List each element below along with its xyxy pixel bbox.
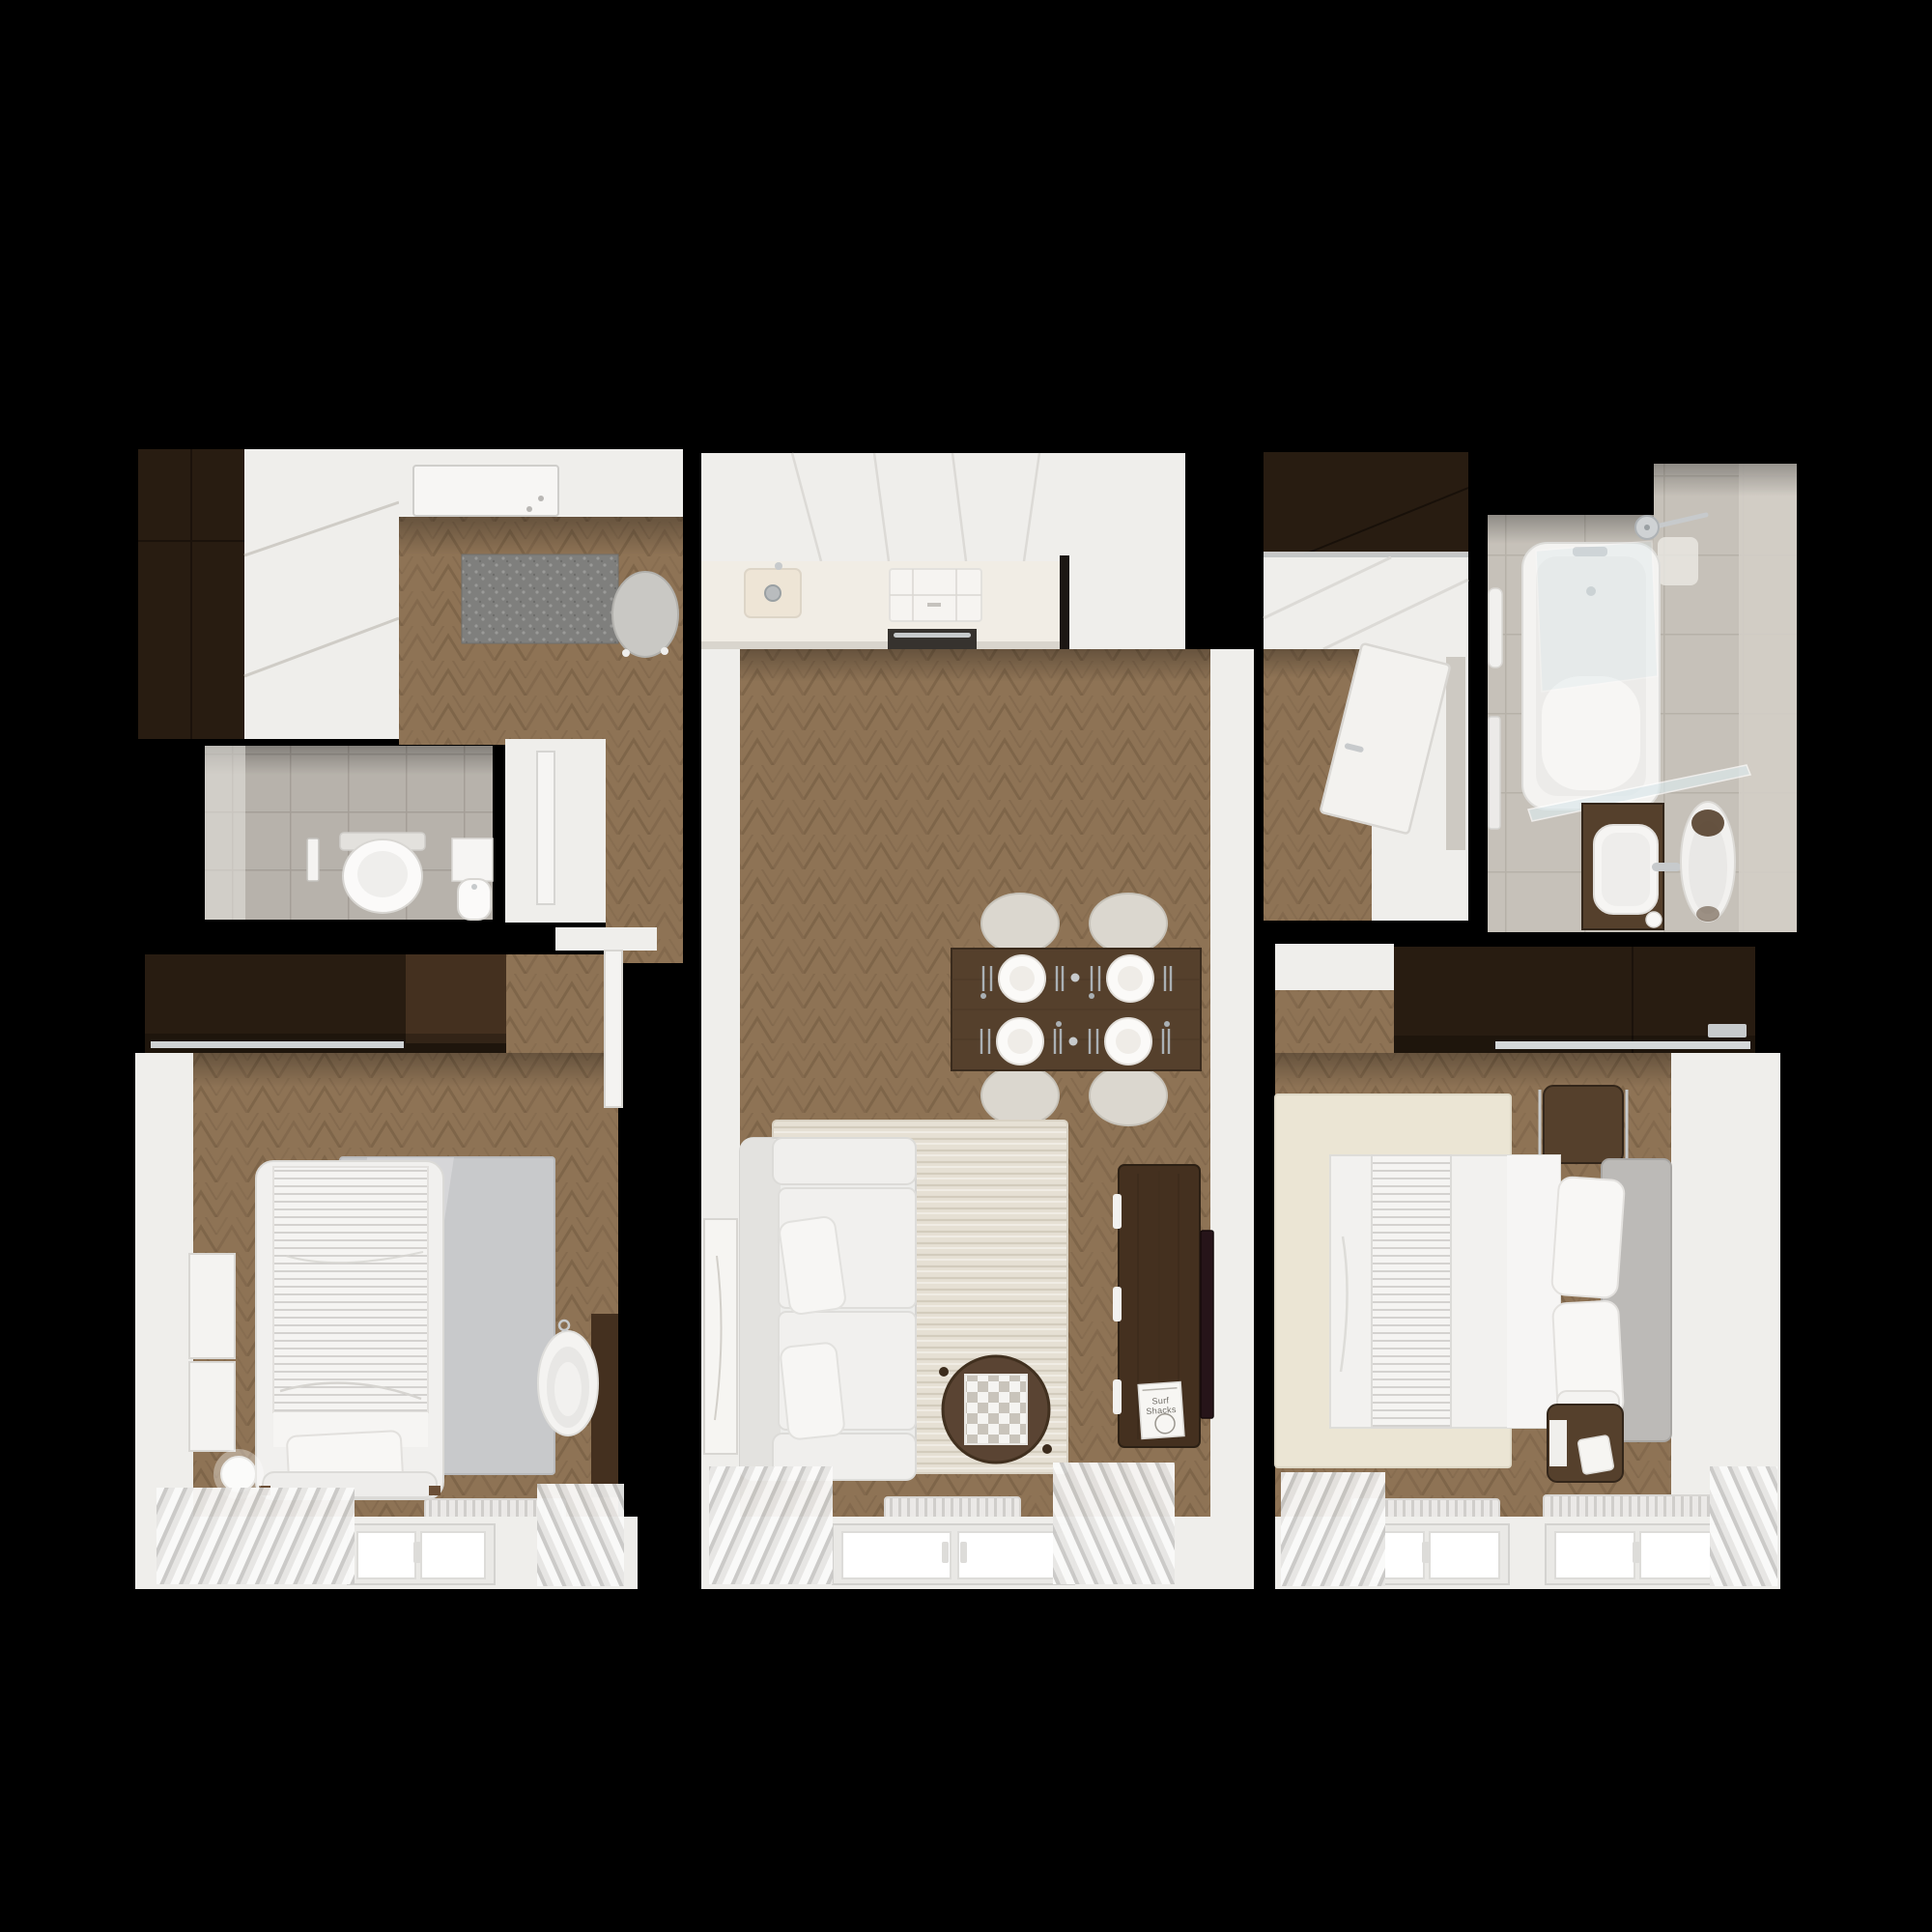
living-dining-room: Surf Shacks [701, 649, 1254, 1589]
clothes-rail [151, 1041, 404, 1048]
striped-duvet [273, 1167, 428, 1412]
living-radiator [885, 1497, 1020, 1519]
inner-hall-cabinet [1264, 452, 1468, 554]
window-handle [1633, 1542, 1640, 1563]
sofa-pillow [779, 1215, 847, 1315]
bathroom-threshold [1446, 657, 1465, 850]
inner-hall [1264, 452, 1468, 921]
living-east-wall [1210, 649, 1254, 1517]
bedroom1-floor [506, 954, 618, 1053]
window-handle [413, 1542, 421, 1563]
bedroom1-door-lintel [555, 927, 657, 951]
kitchen-sink [745, 562, 801, 617]
bedroom2-wall-stub [1275, 944, 1394, 990]
dining-chair [1090, 894, 1167, 953]
window-handle [1422, 1542, 1430, 1563]
bedroom1-west-wall [135, 1053, 193, 1517]
oven [888, 629, 977, 651]
entrance-door-hinge [526, 506, 532, 512]
kitchen-corner-wall [1185, 453, 1254, 649]
flush-plate [307, 838, 319, 881]
nightstand-drawer [1549, 1420, 1567, 1466]
kitchen-tall-cabinet-side [1060, 555, 1069, 649]
shower-shelf [1658, 537, 1698, 585]
window-pane [1430, 1532, 1499, 1578]
window-handle [942, 1542, 949, 1563]
bedroom2-window [1546, 1524, 1729, 1584]
nightstand [1540, 1086, 1627, 1163]
dining-chair [981, 894, 1059, 953]
bedroom-2 [1275, 944, 1780, 1589]
living-floor-shadow [740, 649, 1210, 682]
window-pane [1555, 1532, 1634, 1578]
sofa-pillow [780, 1342, 845, 1440]
nightstand [1548, 1405, 1623, 1482]
book: Surf Shacks [1138, 1382, 1184, 1439]
sofa [740, 1138, 916, 1480]
window-pane [357, 1532, 415, 1578]
window-pane [842, 1532, 951, 1578]
sofa-back [740, 1138, 781, 1480]
window-handle [960, 1542, 967, 1563]
bedroom1-bed [256, 1161, 443, 1499]
bedroom2-wardrobe [1394, 947, 1755, 1053]
curtain [156, 1488, 355, 1584]
cooktop [890, 569, 981, 621]
curtain [1281, 1472, 1385, 1586]
hall-floor-shadow [399, 517, 683, 555]
dining-chair [981, 1065, 1059, 1125]
kitchen-faucet [775, 562, 782, 570]
toilet [340, 833, 425, 913]
oven-handle [894, 633, 971, 638]
wc-room [205, 746, 493, 920]
wall-art [704, 1219, 737, 1454]
bathroom [1488, 464, 1797, 932]
curtain [1053, 1463, 1175, 1584]
striped-runner [1372, 1155, 1451, 1428]
bedroom1-window [348, 1524, 495, 1584]
living-window [833, 1524, 1074, 1584]
table-condiment [1071, 974, 1080, 982]
curtain [1710, 1466, 1777, 1586]
wardrobe-rail [1264, 552, 1468, 557]
curtain [537, 1484, 624, 1586]
kitchen [701, 453, 1254, 651]
chessboard [965, 1375, 1027, 1444]
window-pane [421, 1532, 485, 1578]
bedroom2-radiator [1544, 1495, 1727, 1519]
entry-hall [138, 449, 683, 745]
sofa-armrest [773, 1138, 916, 1184]
kitchen-right-wall [1069, 561, 1185, 649]
curtain [709, 1466, 833, 1584]
towel-radiator [1489, 717, 1500, 829]
entrance-door-hinge [538, 496, 544, 501]
wc-door-open-leaf [537, 752, 554, 904]
sideboard-handle [1113, 1194, 1122, 1229]
tv-sideboard: Surf Shacks [1113, 1165, 1213, 1447]
wall-frame [189, 1254, 235, 1358]
corridor [505, 739, 683, 963]
bed-pillow [1551, 1177, 1625, 1298]
bathtub [1522, 541, 1660, 810]
bath-glass-screen [1536, 541, 1658, 692]
sideboard-handle [1113, 1379, 1122, 1414]
bedroom-1 [135, 951, 638, 1589]
wc-corner-sink [452, 838, 493, 920]
wc-shadow [205, 746, 493, 775]
doormat [462, 554, 618, 643]
bedroom2-east-wall [1671, 1053, 1780, 1517]
sideboard-handle [1113, 1287, 1122, 1321]
bathroom-east-wall [1739, 464, 1797, 932]
floor-plan: Surf Shacks [0, 0, 1932, 1932]
hall-stool [612, 572, 678, 657]
wall-frame [189, 1362, 235, 1451]
kitchen-counter-edge [701, 641, 1060, 649]
oval-mirror [1681, 802, 1735, 922]
window-pane [958, 1532, 1065, 1578]
bedroom1-wardrobe [145, 954, 506, 1053]
clothes-rail [1495, 1041, 1750, 1049]
bedroom2-bed [1330, 1155, 1671, 1441]
dining-chair [1090, 1065, 1167, 1125]
table-condiment [1069, 1037, 1078, 1046]
wc-left-wall-light [205, 746, 245, 920]
bedroom1-door-open-leaf [605, 951, 622, 1107]
entrance-door [413, 466, 558, 516]
hall-sliding-closet [244, 449, 399, 739]
vanity-faucet [1652, 863, 1681, 871]
soap-dispenser [1646, 912, 1662, 927]
tv-panel [1201, 1231, 1213, 1418]
kitchen-upper-cabinets [701, 453, 1254, 561]
window-pane [1640, 1532, 1719, 1578]
floor-plan-canvas: Surf Shacks [0, 0, 1932, 1932]
bathroom-wall-cabinet [1489, 588, 1502, 668]
alarm-clock [1577, 1435, 1614, 1474]
rail-bracket [1708, 1024, 1747, 1037]
